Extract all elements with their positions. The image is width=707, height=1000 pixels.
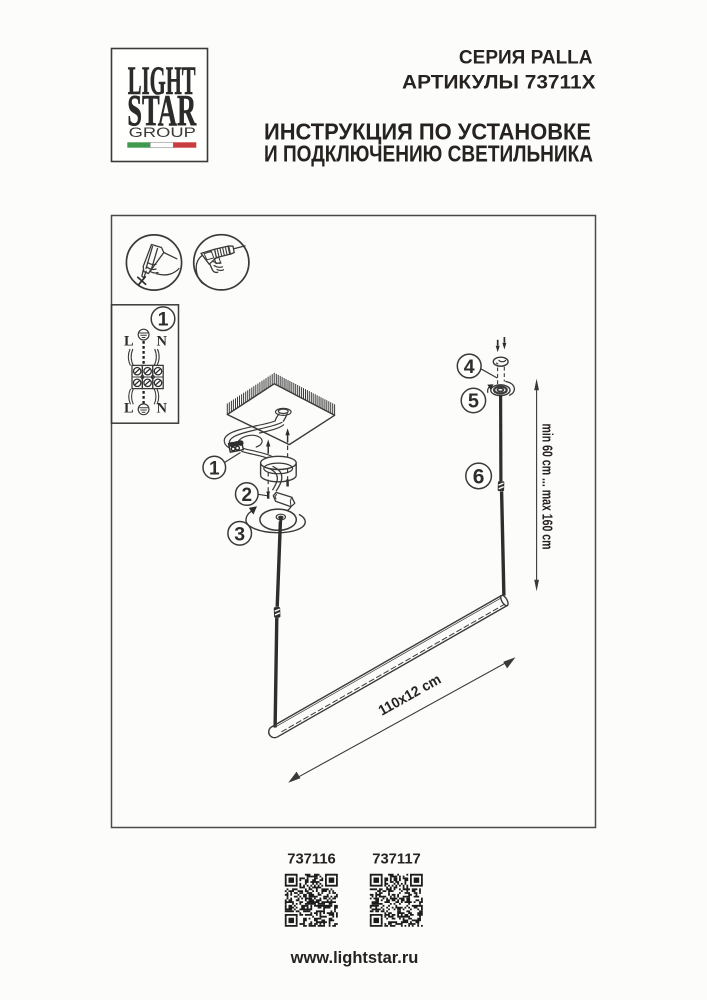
svg-text:min 60 cm ... max 160 cm: min 60 cm ... max 160 cm [539, 424, 555, 550]
svg-text:737117: 737117 [372, 851, 421, 867]
svg-text:АРТИКУЛЫ 73711X: АРТИКУЛЫ 73711X [402, 72, 596, 94]
svg-text:2: 2 [242, 485, 253, 506]
svg-text:1: 1 [209, 458, 220, 479]
svg-text:www.lightstar.ru: www.lightstar.ru [290, 949, 419, 967]
svg-text:3: 3 [234, 523, 245, 545]
svg-text:4: 4 [464, 356, 475, 378]
svg-text:И ПОДКЛЮЧЕНИЮ СВЕТИЛЬНИКА: И ПОДКЛЮЧЕНИЮ СВЕТИЛЬНИКА [264, 140, 593, 166]
svg-text:L: L [124, 401, 134, 417]
svg-text:1: 1 [158, 309, 169, 331]
svg-text:6: 6 [473, 465, 485, 488]
svg-text:СЕРИЯ PALLA: СЕРИЯ PALLA [459, 48, 593, 69]
svg-text:L: L [124, 334, 134, 350]
svg-text:737116: 737116 [287, 851, 336, 867]
svg-text:N: N [157, 401, 168, 417]
svg-text:N: N [157, 334, 168, 350]
svg-text:GROUP: GROUP [129, 125, 196, 141]
svg-text:5: 5 [468, 391, 479, 413]
